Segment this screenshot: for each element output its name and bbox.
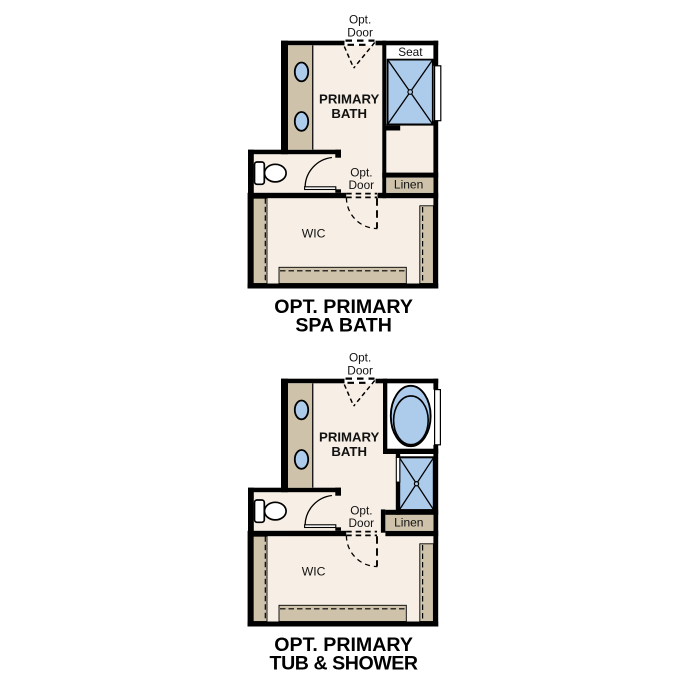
- svg-text:Door: Door: [349, 178, 375, 192]
- svg-text:PRIMARY: PRIMARY: [319, 91, 380, 106]
- svg-text:SPA BATH: SPA BATH: [295, 315, 392, 337]
- svg-text:BATH: BATH: [331, 106, 367, 121]
- svg-text:Opt.: Opt.: [349, 13, 371, 27]
- svg-text:TUB & SHOWER: TUB & SHOWER: [270, 652, 418, 674]
- svg-text:Door: Door: [347, 364, 373, 378]
- svg-text:BATH: BATH: [331, 444, 367, 459]
- svg-text:Door: Door: [349, 516, 375, 530]
- svg-text:Door: Door: [347, 26, 373, 40]
- svg-text:WIC: WIC: [302, 564, 326, 578]
- svg-text:Linen: Linen: [394, 178, 423, 192]
- svg-text:Seat: Seat: [398, 45, 423, 59]
- svg-text:WIC: WIC: [302, 226, 326, 240]
- svg-text:PRIMARY: PRIMARY: [319, 429, 380, 444]
- svg-text:Linen: Linen: [394, 516, 423, 530]
- svg-text:Opt.: Opt.: [349, 351, 371, 365]
